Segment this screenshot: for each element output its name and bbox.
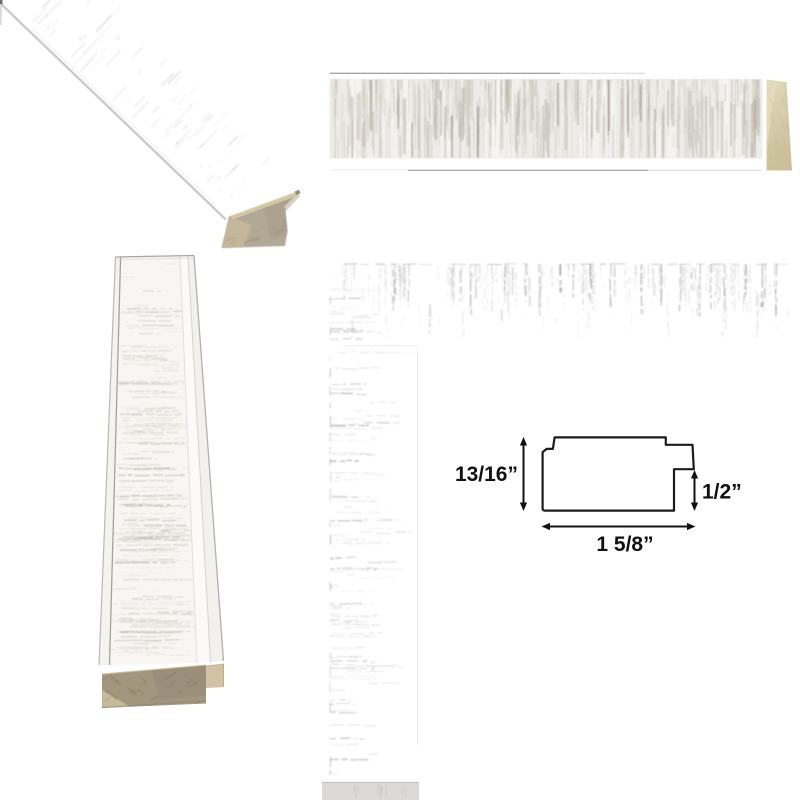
svg-text:13/16”: 13/16” [455, 463, 518, 486]
svg-text:1 5/8”: 1 5/8” [596, 533, 653, 556]
svg-text:1/2”: 1/2” [702, 481, 742, 504]
